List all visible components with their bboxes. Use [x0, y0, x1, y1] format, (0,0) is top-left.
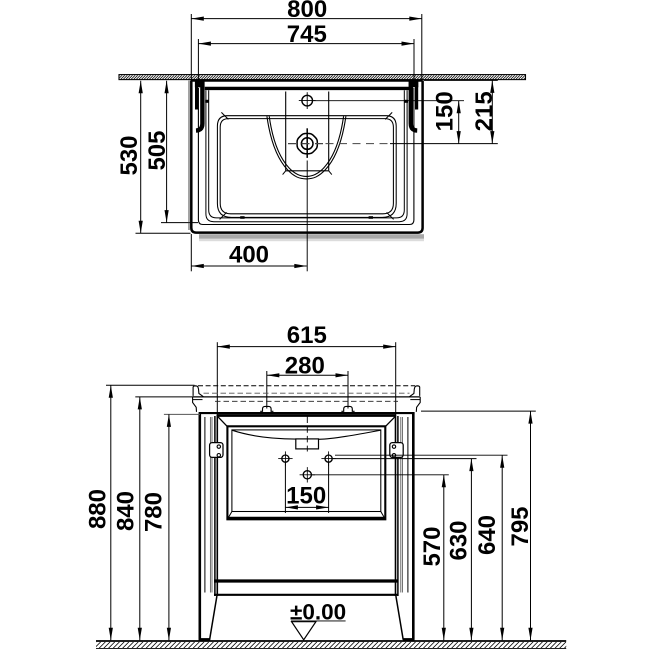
svg-text:215: 215: [471, 91, 498, 131]
svg-text:530: 530: [116, 135, 143, 175]
svg-text:795: 795: [507, 506, 534, 546]
svg-text:640: 640: [474, 515, 501, 555]
svg-text:780: 780: [141, 492, 168, 532]
svg-text:400: 400: [229, 241, 269, 268]
svg-text:150: 150: [432, 91, 459, 131]
svg-text:615: 615: [287, 322, 327, 349]
svg-text:745: 745: [287, 21, 327, 48]
svg-text:800: 800: [287, 0, 327, 23]
svg-text:630: 630: [445, 520, 472, 560]
svg-text:150: 150: [286, 482, 326, 509]
svg-text:280: 280: [285, 352, 325, 379]
svg-text:840: 840: [113, 491, 140, 531]
svg-text:505: 505: [144, 130, 171, 170]
svg-text:570: 570: [419, 526, 446, 566]
svg-text:880: 880: [85, 489, 112, 529]
